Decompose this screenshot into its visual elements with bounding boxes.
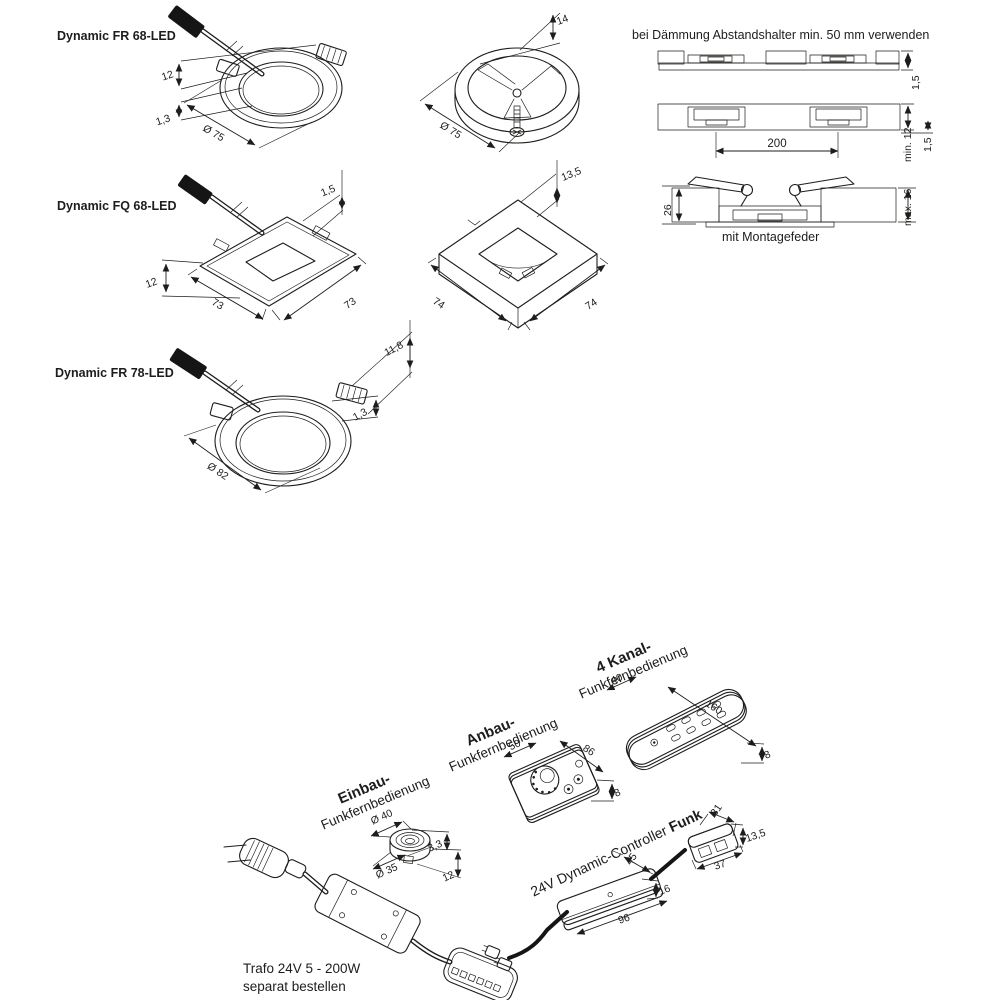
- transformer-icon: [313, 872, 423, 956]
- fr78-drawing: 11,8 1,3 Ø 82: [169, 320, 412, 493]
- dim-fq68-rim: 1,5: [319, 183, 337, 200]
- dim-ring-height: 14: [555, 12, 570, 27]
- dim-anbau-height: 8: [612, 786, 622, 799]
- fq-frame-drawing: 13,5 74 74: [428, 160, 608, 330]
- dim-fr78-height: 11,8: [382, 339, 405, 359]
- technical-drawings: 12 1,3 Ø 75 14 Ø 75: [0, 0, 1000, 1000]
- cable-connector-icon: [177, 174, 213, 205]
- distributor-block-icon: [440, 945, 520, 1000]
- dim-fq68-depth: 73: [342, 295, 359, 312]
- dim-cross-spacing: 200: [767, 138, 786, 150]
- spring-clip-icon: [214, 239, 230, 252]
- dim-cross-min-depth: min. 12: [902, 127, 914, 162]
- spring-clip-icon: [316, 43, 347, 66]
- cable-connector-icon: [169, 347, 207, 379]
- dim-einbau-lip: 3,3: [426, 838, 444, 855]
- dim-receiver-width: 31: [708, 802, 725, 819]
- trafo-note: Trafo 24V 5 - 200W separat bestellen: [243, 960, 360, 995]
- dim-einbau-depth: 12: [441, 869, 457, 885]
- dim-fr68-height: 12: [160, 68, 175, 83]
- fq68-drawing: 1,5 12 73 73: [144, 170, 366, 320]
- recessed-light-profile: [688, 55, 744, 63]
- dim-cross-max-depth: max. 16: [902, 188, 914, 226]
- trafo-line1: Trafo 24V 5 - 200W: [243, 960, 360, 978]
- dim-fr78-diameter: Ø 82: [205, 460, 231, 483]
- recessed-light-profile: [688, 107, 745, 127]
- dim-frame-height: 13,5: [560, 165, 584, 184]
- insulation-sections-drawing: 1,5 200 min. 12 1,5: [658, 51, 934, 227]
- dim-frame-depth: 74: [583, 296, 599, 313]
- dim-controller-length: 96: [617, 912, 632, 927]
- dim-fr68-rim: 1,3: [154, 112, 172, 128]
- dim-receiver-length: 37: [713, 858, 728, 873]
- recessed-light-profile: [810, 55, 866, 63]
- receiver-box-icon: [687, 823, 739, 864]
- catalog-page: 12 1,3 Ø 75 14 Ø 75: [0, 0, 1000, 1000]
- dim-kanal4-height: 8: [762, 748, 772, 761]
- dim-fq68-height: 12: [144, 275, 159, 290]
- dim-einbau-inner: Ø 35: [374, 861, 400, 881]
- montagefeder-caption: mit Montagefeder: [722, 230, 819, 244]
- dim-fr78-rim: 1,3: [351, 406, 370, 424]
- dim-fq68-width: 73: [209, 296, 225, 312]
- dim-ring-diameter: Ø 75: [438, 119, 464, 141]
- mounting-ring-drawing: 14 Ø 75: [420, 12, 579, 152]
- dim-cross-panel-bottom: 1,5: [922, 137, 934, 152]
- spring-clip-icon: [336, 382, 368, 404]
- product-title-fr78: Dynamic FR 78-LED: [55, 366, 174, 380]
- trafo-line2: separat bestellen: [243, 978, 360, 996]
- dim-receiver-height: 13,5: [744, 827, 767, 845]
- mains-plug-icon: [224, 835, 307, 881]
- dim-anbau-length: 86: [580, 742, 596, 759]
- light-with-springs: [688, 177, 854, 227]
- dim-controller-height: 16: [657, 882, 672, 897]
- fr68-drawing: 12 1,3 Ø 75: [154, 5, 346, 148]
- insulation-note: bei Dämmung Abstandshalter min. 50 mm ve…: [632, 28, 929, 42]
- spring-clip-icon: [312, 226, 330, 241]
- dim-cross-spring: 26: [662, 204, 674, 216]
- dim-frame-width: 74: [430, 295, 446, 312]
- dim-cross-panel-top: 1,5: [910, 75, 922, 90]
- product-title-fq68: Dynamic FQ 68-LED: [57, 199, 176, 213]
- product-title-fr68: Dynamic FR 68-LED: [57, 29, 176, 43]
- recessed-light-profile: [810, 107, 867, 127]
